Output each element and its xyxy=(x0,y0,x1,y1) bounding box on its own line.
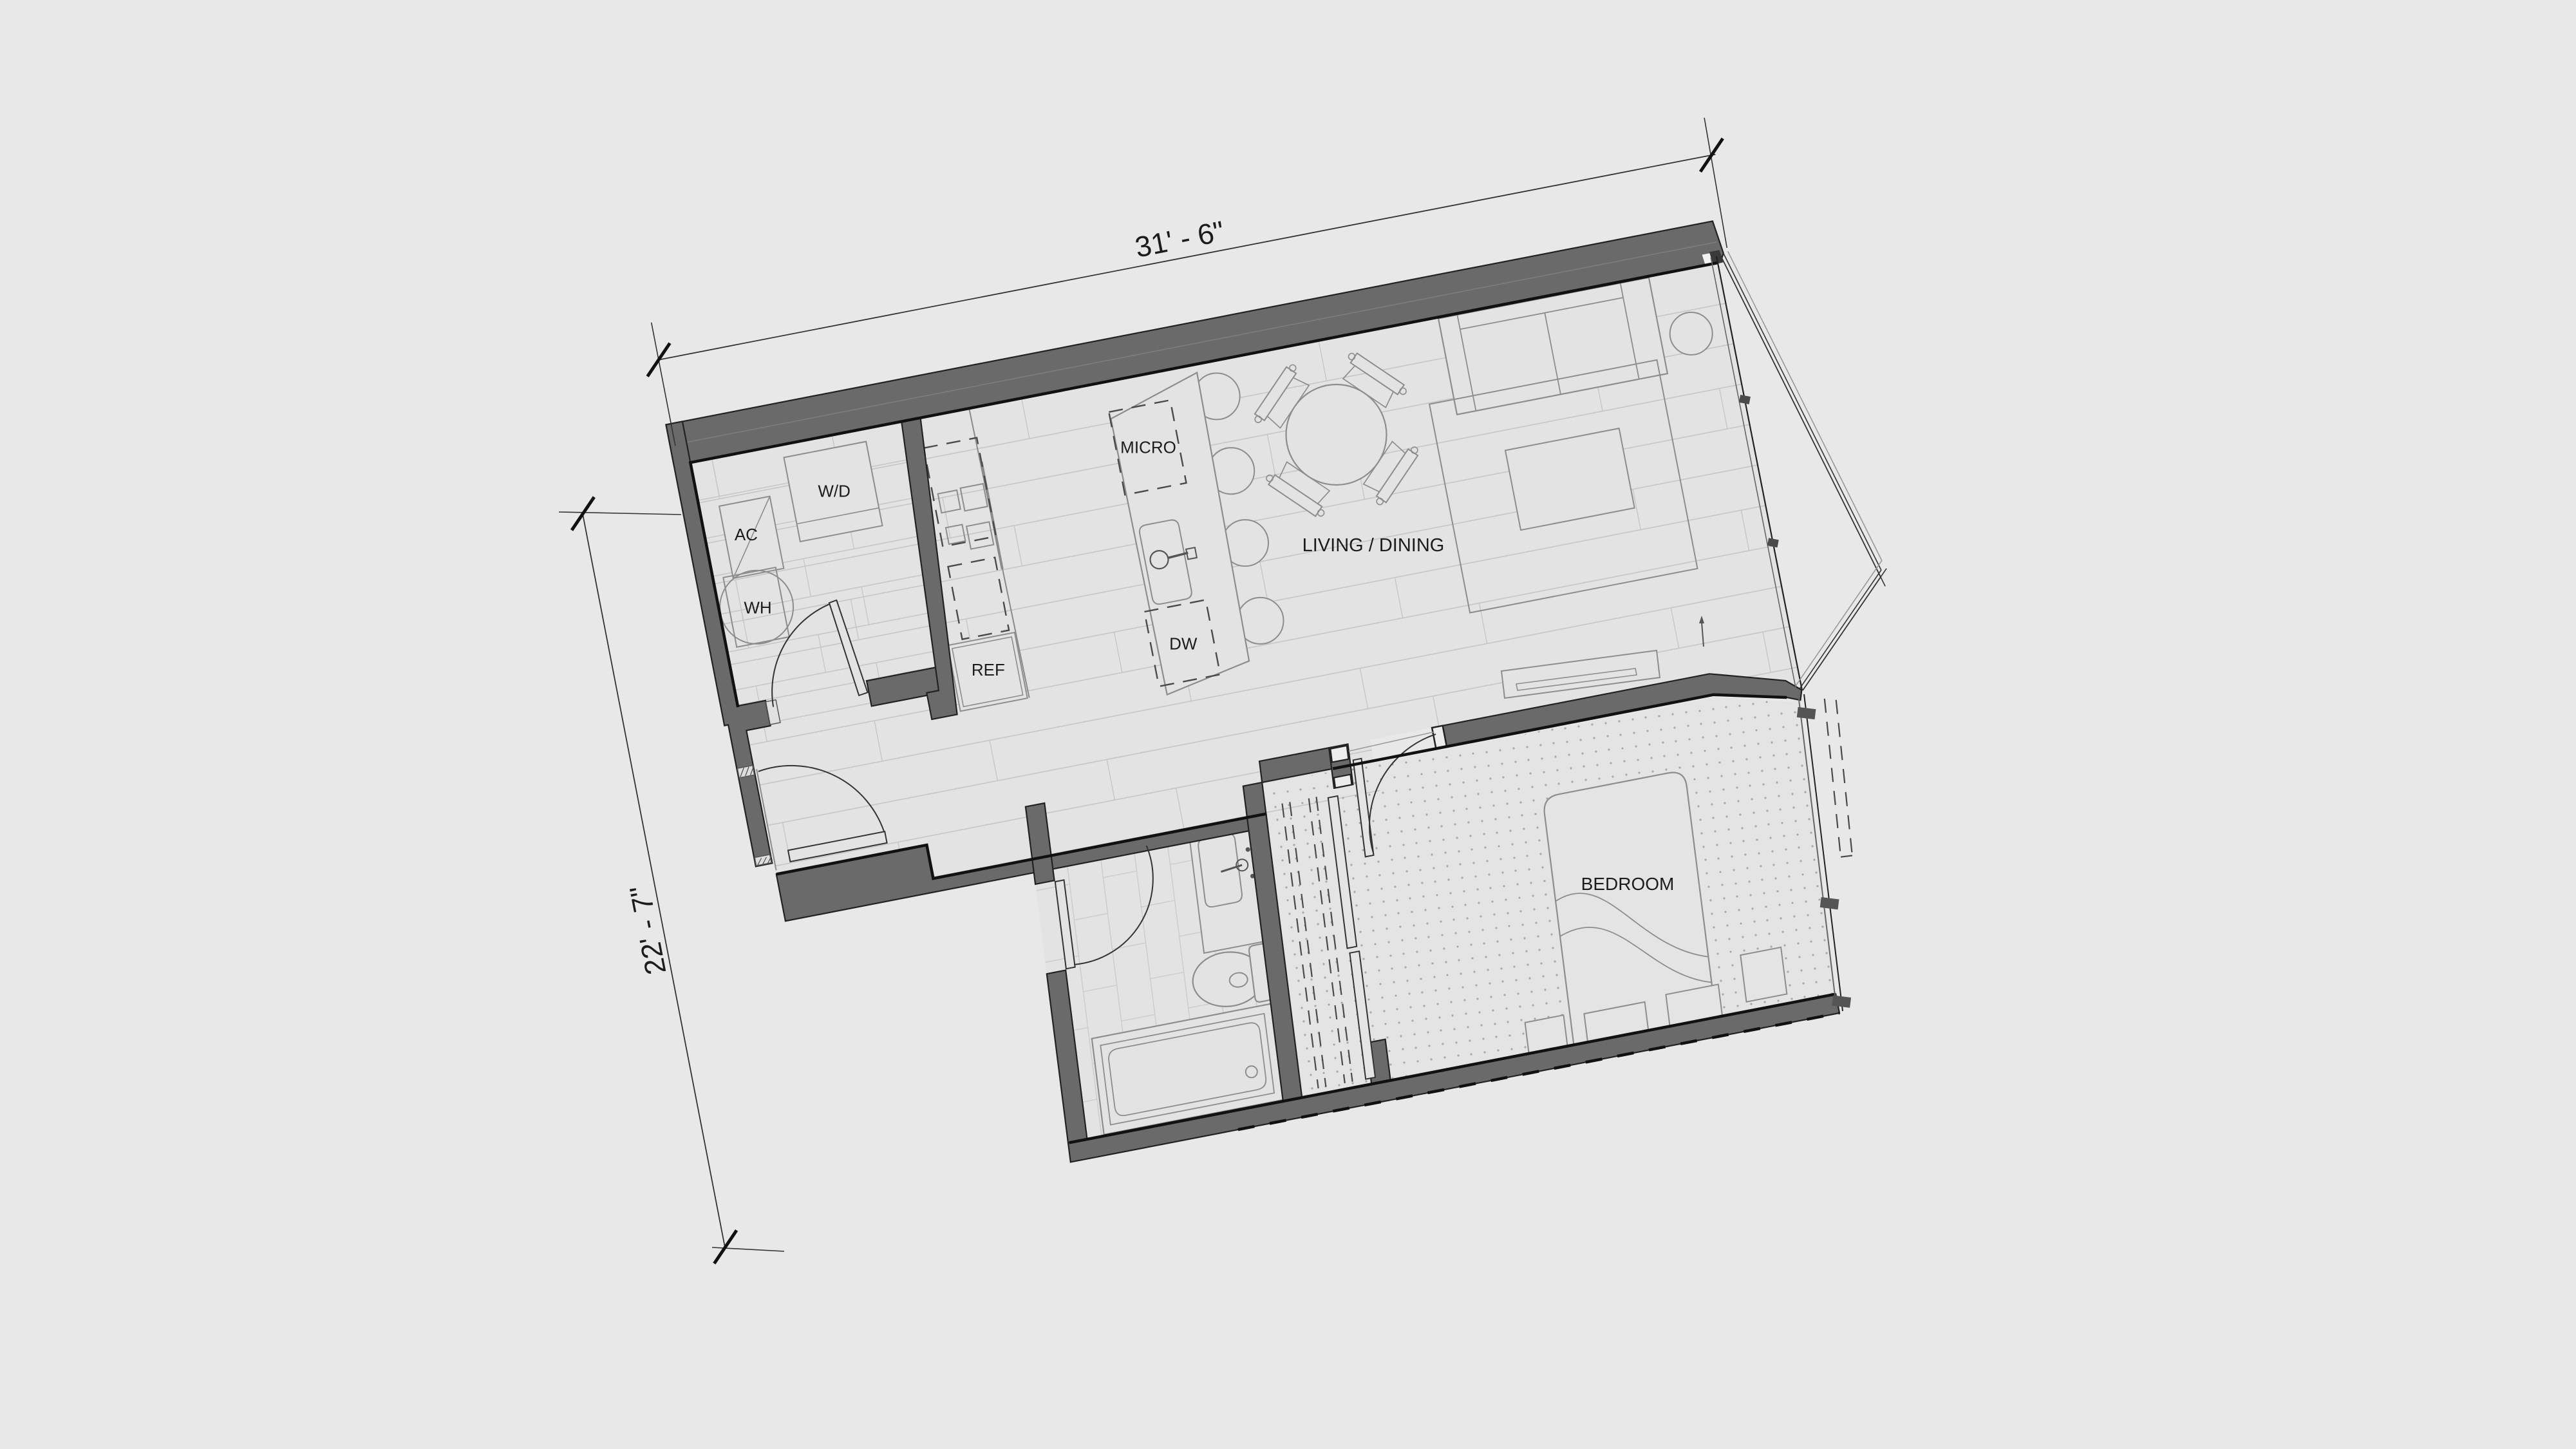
svg-text:AC: AC xyxy=(735,525,758,544)
svg-text:W/D: W/D xyxy=(818,482,851,501)
svg-text:WH: WH xyxy=(744,598,771,618)
svg-text:DW: DW xyxy=(1169,634,1198,654)
svg-text:REF: REF xyxy=(972,660,1005,679)
svg-text:LIVING / DINING: LIVING / DINING xyxy=(1302,535,1445,556)
svg-text:BEDROOM: BEDROOM xyxy=(1581,874,1675,894)
svg-text:MICRO: MICRO xyxy=(1120,437,1176,457)
